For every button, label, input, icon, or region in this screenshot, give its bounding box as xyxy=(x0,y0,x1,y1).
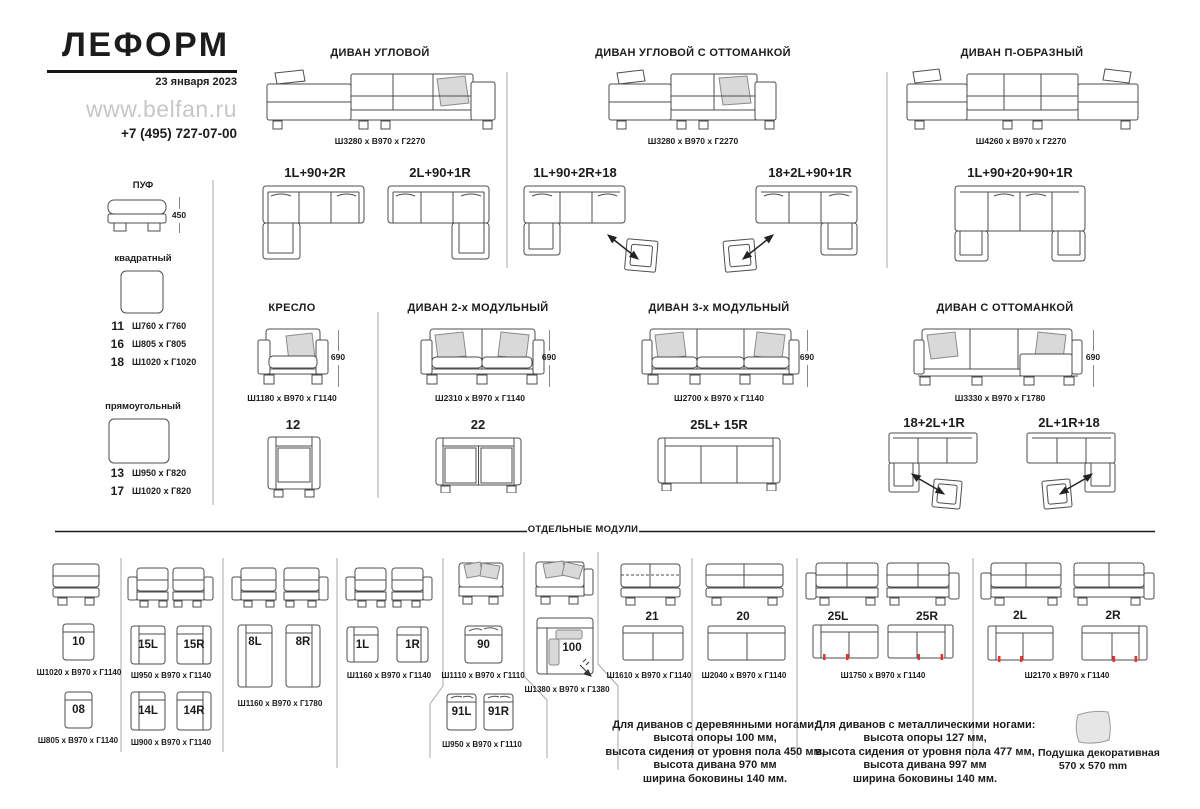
pouf-square-label: квадратный xyxy=(103,253,183,264)
note-line: высота дивана 997 мм xyxy=(812,759,1038,772)
module-plan-25L xyxy=(812,624,879,661)
config-label: 1L+90+20+90+1R xyxy=(940,165,1100,180)
sofa2-height-dim: 690 xyxy=(537,352,561,362)
module-dims: Ш1380 х В970 х Г1380 xyxy=(521,685,613,694)
module-front-20 xyxy=(703,561,786,608)
config-label: 2L+90+1R xyxy=(390,165,490,180)
dim-line xyxy=(1093,330,1094,351)
module-label-2R: 2R xyxy=(1083,608,1143,622)
section-title-u-shape: ДИВАН П-ОБРАЗНЫЙ xyxy=(922,47,1122,59)
module-dims: Ш805 х В970 х Г1140 xyxy=(32,736,124,745)
section-title-corner: ДИВАН УГЛОВОЙ xyxy=(280,47,480,59)
pouf-item-dims: Ш760 х Г760 xyxy=(132,321,186,331)
section-title-corner-ottoman: ДИВАН УГЛОВОЙ С ОТТОМАНКОЙ xyxy=(593,47,793,59)
module-label: 14L xyxy=(138,705,158,717)
section-title-armchair: КРЕСЛО xyxy=(242,302,342,314)
modules-section-title: ОТДЕЛЬНЫЕ МОДУЛИ xyxy=(523,524,643,535)
module-label-25L: 25L xyxy=(808,609,868,623)
module-dims: Ш1610 х В970 х Г1140 xyxy=(603,671,695,680)
module-plan-90: 90 xyxy=(464,625,503,664)
module-plan-21 xyxy=(622,625,684,663)
config-label: 25L+ 15R xyxy=(659,417,779,432)
config-label: 1L+90+2R+18 xyxy=(525,165,625,180)
module-plan-2R xyxy=(1081,625,1148,663)
pouf-item-dims: Ш1020 х Г1020 xyxy=(132,357,196,367)
section-dims-corner: Ш3280 х В970 х Г2270 xyxy=(290,136,470,146)
note-line: высота дивана 970 мм xyxy=(602,759,828,772)
note-line: высота опоры 100 мм, xyxy=(602,732,828,745)
module-dims: Ш900 х В970 х Г1140 xyxy=(125,738,217,747)
module-label-21: 21 xyxy=(622,609,682,623)
module-plan-14L: 14L xyxy=(130,691,166,731)
pouf-height-dim: 450 xyxy=(164,210,194,220)
config-label: 12 xyxy=(263,417,323,432)
config-topview-1L-90-2R xyxy=(262,185,366,263)
pouf-item-num: 16 xyxy=(104,337,124,351)
module-label-2L: 2L xyxy=(990,608,1050,622)
module-label: 10 xyxy=(72,636,85,648)
module-front-25R xyxy=(884,559,961,608)
website-url[interactable]: www.belfan.ru xyxy=(77,96,237,123)
pouf-item-num: 17 xyxy=(104,484,124,498)
note-line: ширина боковины 140 мм. xyxy=(602,773,828,786)
dim-line xyxy=(179,197,180,209)
note-line: высота сидения от уровня пола 477 мм, xyxy=(812,746,1038,759)
module-front-8L xyxy=(230,565,278,608)
module-plan-10: 10 xyxy=(62,623,95,661)
module-dims: Ш950 х В970 х Г1110 xyxy=(436,740,528,749)
note-line: Для диванов с металлическими ногами: xyxy=(812,719,1038,732)
module-plan-100: 100 xyxy=(536,617,594,679)
module-front-2L xyxy=(979,559,1064,608)
config-topview-2L-1R-18 xyxy=(1020,432,1116,512)
module-label-20: 20 xyxy=(713,609,773,623)
module-front-15L xyxy=(126,565,170,608)
module-plan-08: 08 xyxy=(64,691,93,729)
config-label: 18+2L+1R xyxy=(884,415,984,430)
pouf-rect-drawing xyxy=(108,418,170,464)
module-dims: Ш1110 х В970 х Г1110 xyxy=(437,671,529,680)
corner-sofa-front-drawing xyxy=(263,66,501,138)
config-topview-2L-90-1R xyxy=(386,185,490,263)
module-plan-8R: 8R xyxy=(285,624,321,688)
module-label: 90 xyxy=(477,639,490,651)
pouf-square-drawing xyxy=(120,270,164,314)
module-plan-1R: 1R xyxy=(396,626,429,663)
section-dims-armchair: Ш1180 х В970 х Г1140 xyxy=(222,393,362,403)
config-front-12 xyxy=(267,436,321,498)
pouf-item-num: 13 xyxy=(104,466,124,480)
dim-line xyxy=(179,223,180,233)
note-line: высота сидения от уровня пола 450 мм, xyxy=(602,746,828,759)
section-dims-corner-ottoman: Ш3280 х В970 х Г2270 xyxy=(603,136,783,146)
module-label: 91L xyxy=(452,706,472,718)
section-dims-sofa-ottoman: Ш3330 х В970 х Г1780 xyxy=(930,393,1070,403)
module-label: 91R xyxy=(488,706,509,718)
u-sofa-front-drawing xyxy=(905,66,1140,138)
module-front-15R xyxy=(171,565,215,608)
module-plan-14R: 14R xyxy=(176,691,212,731)
sofa3-height-dim: 690 xyxy=(795,352,819,362)
section-title-sofa2: ДИВАН 2-х МОДУЛЬНЫЙ xyxy=(378,302,578,314)
dim-line xyxy=(807,365,808,387)
pillow-caption-line2: 570 х 570 mm xyxy=(1038,760,1148,772)
module-label: 1R xyxy=(405,639,420,651)
module-front-8R xyxy=(282,565,330,608)
module-label: 15L xyxy=(138,639,158,651)
module-dims: Ш1160 х В970 х Г1140 xyxy=(343,671,435,680)
module-dims: Ш1750 х В970 х Г1140 xyxy=(837,671,929,680)
config-topview-1L-90-2R-18 xyxy=(523,185,663,277)
module-label: 15R xyxy=(183,639,204,651)
dim-line xyxy=(549,330,550,351)
config-front-22 xyxy=(435,437,522,493)
module-dims: Ш1020 х В970 х Г1140 xyxy=(33,668,125,677)
config-label: 1L+90+2R xyxy=(265,165,365,180)
dim-line xyxy=(338,365,339,387)
module-front-1R xyxy=(390,565,434,608)
module-plan-15L: 15L xyxy=(130,625,166,665)
pouf-item-num: 18 xyxy=(104,355,124,369)
module-front-2R xyxy=(1071,559,1156,608)
pouf-item-dims: Ш950 х Г820 xyxy=(132,468,186,478)
catalog-date: 23 января 2023 xyxy=(97,76,237,88)
dim-line xyxy=(1093,365,1094,387)
config-label: 22 xyxy=(448,417,508,432)
sofa2-front-drawing xyxy=(419,324,546,388)
dim-line xyxy=(338,330,339,351)
note-line: высота опоры 127 мм, xyxy=(812,732,1038,745)
config-topview-u xyxy=(954,185,1086,265)
note-line: Для диванов с деревянными ногами: xyxy=(602,719,828,732)
pouf-item-dims: Ш805 х Г805 xyxy=(132,339,186,349)
module-plan-91L: 91L xyxy=(446,693,477,731)
section-dims-sofa2: Ш2310 х В970 х Г1140 xyxy=(410,393,550,403)
section-title-sofa3: ДИВАН 3-х МОДУЛЬНЫЙ xyxy=(619,302,819,314)
module-plan-25R xyxy=(887,624,954,661)
note-line: ширина боковины 140 мм. xyxy=(812,773,1038,786)
module-plan-15R: 15R xyxy=(176,625,212,665)
module-front-100 xyxy=(533,557,595,608)
module-label: 08 xyxy=(72,704,85,716)
pouf-rect-label: прямоугольный xyxy=(98,401,188,412)
armchair-height-dim: 690 xyxy=(326,352,350,362)
module-plan-1L: 1L xyxy=(346,626,379,663)
note-wooden-legs: Для диванов с деревянными ногами: высота… xyxy=(602,719,828,786)
module-label: 8R xyxy=(296,636,311,648)
note-metal-legs: Для диванов с металлическими ногами: выс… xyxy=(812,719,1038,786)
dim-line xyxy=(807,330,808,351)
section-dims-u-shape: Ш4260 х В970 х Г2270 xyxy=(931,136,1111,146)
module-plan-8L: 8L xyxy=(237,624,273,688)
dim-line xyxy=(549,365,550,387)
brand-underline xyxy=(47,70,237,73)
sofa-ottoman-height-dim: 690 xyxy=(1081,352,1105,362)
module-dims: Ш950 х В970 х Г1140 xyxy=(125,671,217,680)
config-label: 2L+1R+18 xyxy=(1019,415,1119,430)
pouf-title: ПУФ xyxy=(113,180,173,191)
corner-ottoman-front-drawing xyxy=(607,66,779,138)
module-front-10 xyxy=(50,561,102,608)
module-front-25L xyxy=(804,559,881,608)
module-label: 14R xyxy=(183,705,204,717)
sofa-ottoman-front-drawing xyxy=(912,324,1084,388)
brand-logo: ЛЕФОРМ xyxy=(62,26,230,65)
module-plan-2L xyxy=(987,625,1054,663)
module-label: 1L xyxy=(356,639,369,651)
pouf-item-num: 11 xyxy=(104,319,124,333)
module-dims: Ш1160 х В970 х Г1780 xyxy=(234,699,326,708)
section-dims-sofa3: Ш2700 х В970 х Г1140 xyxy=(649,393,789,403)
config-topview-18-2L-90-1R xyxy=(718,185,858,277)
pouf-drawing xyxy=(106,196,170,234)
pillow-caption-line1: Подушка декоративная xyxy=(1038,747,1148,759)
decorative-pillow-icon xyxy=(1070,706,1116,748)
module-dims: Ш2040 х В970 х Г1140 xyxy=(698,671,790,680)
pouf-item-dims: Ш1020 х Г820 xyxy=(132,486,191,496)
module-dims: Ш2170 х В970 х Г1140 xyxy=(1021,671,1113,680)
module-plan-20 xyxy=(707,625,786,663)
section-title-sofa-ottoman: ДИВАН С ОТТОМАНКОЙ xyxy=(905,302,1105,314)
config-label: 18+2L+90+1R xyxy=(760,165,860,180)
module-front-1L xyxy=(344,565,388,608)
config-topview-18-2L-1R xyxy=(888,432,984,512)
module-label-25R: 25R xyxy=(897,609,957,623)
armchair-front-drawing xyxy=(256,324,330,388)
module-label: 100 xyxy=(562,642,581,654)
module-front-21 xyxy=(618,561,683,608)
config-front-25L-15R xyxy=(657,437,781,491)
module-label: 8L xyxy=(248,636,261,648)
sofa3-front-drawing xyxy=(640,324,801,388)
catalog-page: ЛЕФОРМ 23 января 2023 www.belfan.ru +7 (… xyxy=(0,0,1200,809)
phone-number: +7 (495) 727-07-00 xyxy=(77,126,237,141)
module-plan-91R: 91R xyxy=(483,693,514,731)
module-front-90 xyxy=(456,559,506,608)
